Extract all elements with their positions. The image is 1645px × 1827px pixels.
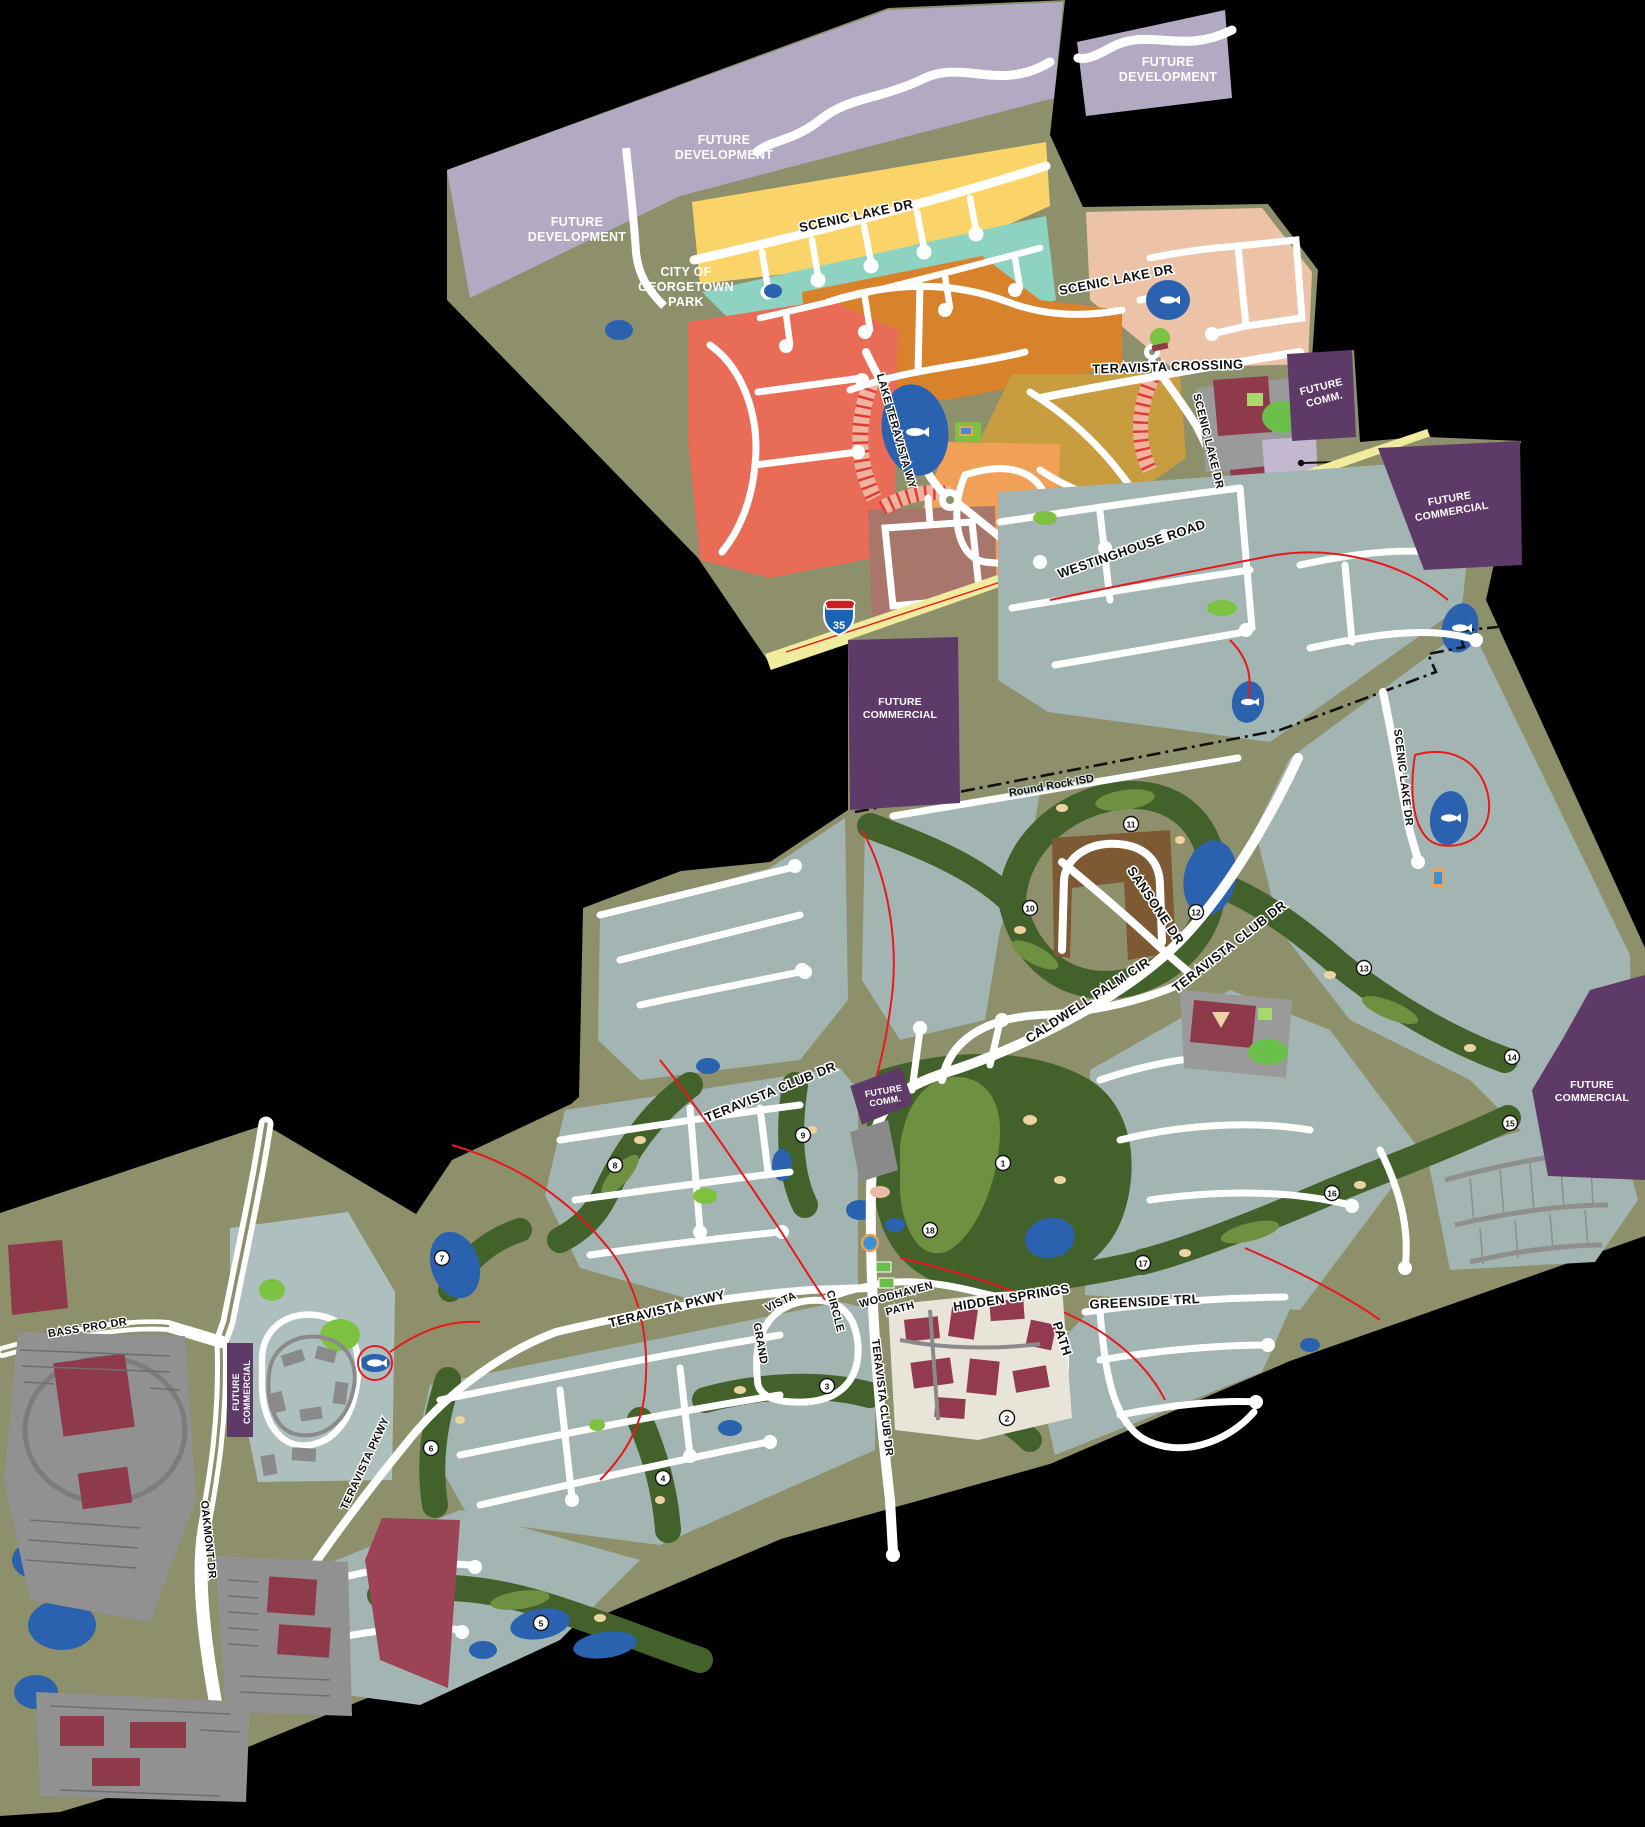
park-pond [605,320,633,340]
golf-hole-9: 9 [801,1131,806,1141]
map-canvas: 35 1 2 3 4 5 6 7 8 9 10 11 12 13 14 15 1… [0,0,1645,1827]
georgetown-park-label-3: PARK [668,295,704,309]
future-commercial-east-b: COMMERCIAL [1555,1092,1630,1104]
golf-hole-4: 4 [661,1474,666,1484]
future-commercial-strip-b: COMMERCIAL [242,1360,252,1424]
golf-hole-5: 5 [539,1619,544,1629]
golf-hole-7: 7 [440,1254,445,1264]
georgetown-park-label-1: CITY OF [660,265,711,279]
roundabout-center [946,496,954,504]
golf-hole-16: 16 [1327,1189,1337,1199]
golf-hole-11: 11 [1127,820,1136,830]
amenity-pool-east [1432,868,1444,888]
golf-hole-12: 12 [1191,908,1201,918]
golf-hole-3: 3 [825,1382,830,1392]
golf-hole-18: 18 [925,1226,935,1236]
amenity-pool-top [955,422,981,442]
future-development-label-1a: FUTURE [551,215,604,229]
school-campus-south [1180,990,1292,1078]
future-development-label-3a: FUTURE [1142,55,1195,69]
golf-hole-17: 17 [1138,1259,1148,1269]
golf-hole-2: 2 [1005,1414,1010,1424]
tennis-court [876,1262,891,1272]
georgetown-park-label-2: GEORGETOWN [638,280,734,294]
future-development-label-3b: DEVELOPMENT [1119,70,1218,84]
golf-hole-14: 14 [1507,1053,1517,1063]
golf-hole-15: 15 [1505,1119,1515,1129]
golf-hole-6: 6 [429,1444,434,1454]
future-development-label-2a: FUTURE [698,133,751,147]
golf-hole-10: 10 [1025,904,1035,914]
future-development-label-2b: DEVELOPMENT [675,148,774,162]
tennis-court-2 [879,1278,894,1288]
future-commercial-left-b: COMMERCIAL [863,709,938,721]
future-development-label-1b: DEVELOPMENT [528,230,627,244]
future-commercial-east-a: FUTURE [1570,1079,1614,1091]
golf-hole-1: 1 [1001,1159,1006,1169]
i35-number: 35 [833,620,845,632]
bottom-commercial [36,1692,250,1802]
golf-hole-13: 13 [1359,964,1369,974]
clubhouse-pool [862,1235,878,1251]
future-commercial-strip-a: FUTURE [231,1373,241,1411]
park-pond-2 [764,284,782,298]
golf-hole-8: 8 [613,1161,618,1171]
future-commercial-left-a: FUTURE [878,696,922,708]
playground-park [1150,328,1170,352]
office-park-south [215,1556,352,1716]
